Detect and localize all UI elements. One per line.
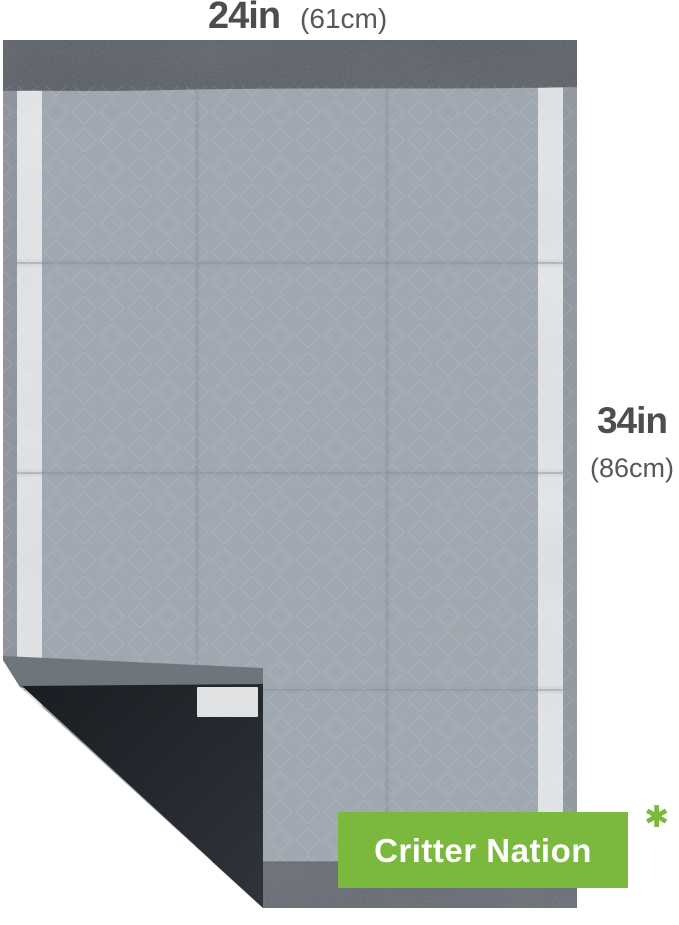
- width-metric: (61cm): [300, 5, 387, 33]
- height-metric: (86cm): [590, 455, 674, 482]
- height-value: 34in: [597, 402, 667, 439]
- width-dimension-label: 24in (61cm): [208, 0, 387, 35]
- height-dimension-label: 34in (86cm): [584, 402, 679, 482]
- footnote-asterisk: ✱: [644, 803, 669, 833]
- brand-badge: Critter Nation: [338, 812, 628, 888]
- product-dimension-image: 24in (61cm) 34in (86cm) Critter Nation ✱: [0, 0, 679, 925]
- adhesive-tape: [197, 687, 258, 717]
- pad-illustration: [0, 0, 679, 925]
- brand-label: Critter Nation: [374, 834, 592, 867]
- width-value: 24in: [208, 0, 280, 35]
